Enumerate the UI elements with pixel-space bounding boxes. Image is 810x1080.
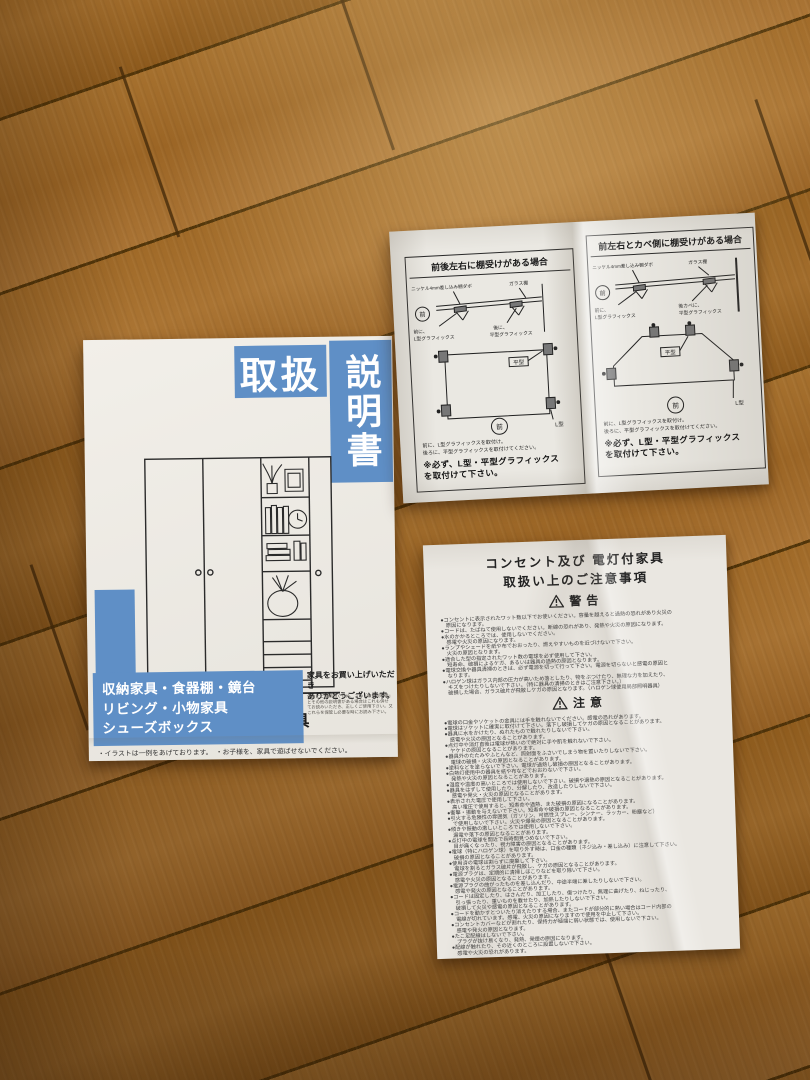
warning-lines: ●コンセントに表示されたワット数以下でお使いください。容量を越えると過熱の恐れが… — [440, 608, 719, 696]
l-type-label: L型 — [735, 398, 744, 406]
dowel-label: ニッケル4mm差し込み棚ダボ — [592, 261, 653, 271]
safety-note-text: 安全にご使用頂くため、この「取扱説明書」 とその他の説明書がある場合はこれも併せ… — [307, 693, 395, 716]
glass-shelf-label: ガラス棚 — [509, 280, 529, 288]
top-view-diagram: 平型 L型 前 — [593, 317, 758, 419]
side-view-diagram: ニッケル4mm差し込み棚ダボ ガラス棚 前 前に、 L型グラフィックス 後に、 … — [409, 272, 572, 344]
thanks-line-1: 家具をお買い上げいただき — [307, 670, 397, 692]
wardrobe-illustration — [139, 451, 342, 706]
front-mark: 前 — [419, 310, 426, 318]
l-type-label: L型 — [555, 420, 564, 428]
flat-type-label: 平型 — [513, 358, 525, 367]
warning-lines-wrap: ●コンセントに表示されたワット数以下でお使いください。容量を越えると過熱の恐れが… — [440, 608, 719, 698]
safety-notice-sheet: コンセント及び 電灯付家具 取扱い上のご注意事項 警告 ●コンセントに表示された… — [423, 535, 740, 959]
caution-triangle-icon — [553, 696, 568, 710]
caution-label: 注意 — [573, 693, 608, 711]
glass-shelf-label: ガラス棚 — [688, 258, 708, 266]
warning-label: 警告 — [569, 591, 604, 609]
front-mark: 前 — [672, 401, 679, 410]
flat-type-label: 平型 — [665, 348, 677, 357]
shelf-panel-left: 前後左右に棚受けがある場合 ニッケル4mm差し込み棚ダボ ガラス棚 前 前に、 — [404, 248, 585, 493]
front-l-label-1: 前に、 — [413, 328, 428, 336]
wardrobe-outline — [141, 457, 340, 696]
manual-title-horizontal: 取扱 — [234, 345, 327, 398]
caution-lines: ●電球の口金やソケットの金具には手を触れないでください。感電の恐れがあります。 … — [444, 711, 728, 956]
warning-triangle-icon — [549, 595, 564, 609]
front-mark: 前 — [599, 289, 606, 297]
dowel-label: ニッケル4mm差し込み棚ダボ — [411, 282, 472, 292]
photo-scene: 取扱 説明書 — [0, 0, 810, 1080]
top-view-diagram: 平型 L型 前 — [412, 338, 577, 440]
shelf-panel-right: 前左右とカベ側に棚受けがある場合 ニッケル4mm差し込み棚ダボ ガラス棚 前 前… — [586, 227, 766, 477]
cover-manual-sheet: 取扱 説明書 — [83, 336, 398, 761]
shelf-contents-drawing — [263, 463, 308, 617]
safety-note-wrap: 安全にご使用頂くため、この「取扱説明書」 とその他の説明書がある場合はこれも併せ… — [307, 693, 395, 718]
blue-accent-block — [95, 589, 136, 674]
back-wall-label-1: 後カベに、 — [678, 301, 702, 309]
side-view-diagram: ニッケル4mm差し込み棚ダボ ガラス棚 前 前に、 L型グラフィックス 後カベに… — [590, 251, 753, 323]
product-category-box: 収納家具・食器棚・鏡台 リビング・小物家具 シューズボックス — [93, 670, 304, 746]
cover-footnote: ・イラストは一例をあげております。 ・お子様を、家具で遊ばせないでください。 — [98, 744, 394, 758]
front-mark: 前 — [496, 422, 503, 431]
caution-lines-wrap: ●電球の口金やソケットの金具には手を触れないでください。感電の恐れがあります。 … — [444, 711, 728, 956]
back-flat-label-1: 後に、 — [493, 324, 508, 332]
shelf-instruction-sheet: 前後左右に棚受けがある場合 ニッケル4mm差し込み棚ダボ ガラス棚 前 前に、 — [389, 213, 769, 504]
front-l-label-1: 前に、 — [594, 306, 609, 314]
